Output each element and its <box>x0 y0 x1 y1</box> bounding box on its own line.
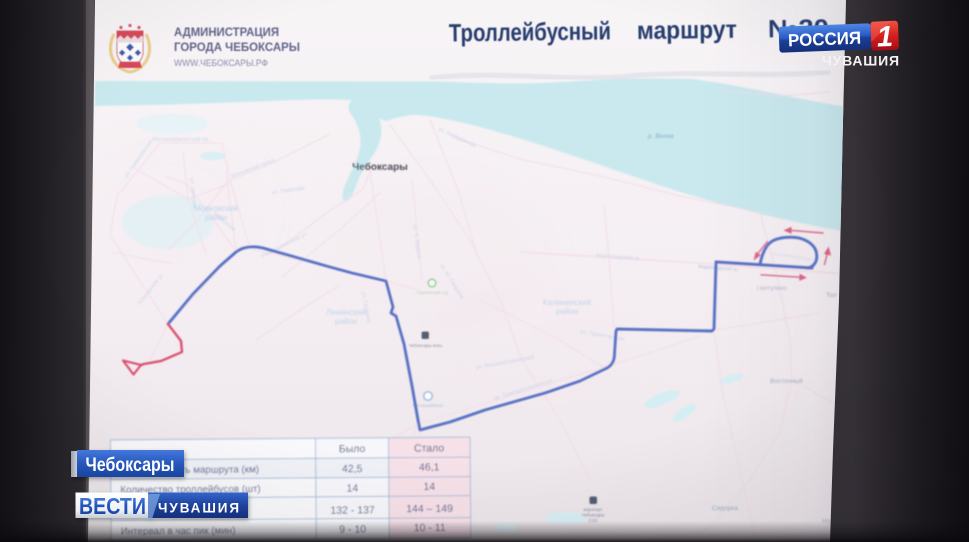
svg-text:Чебоксары: Чебоксары <box>86 455 175 476</box>
svg-text:1: 1 <box>876 21 893 54</box>
svg-text:ЧУВАШИЯ: ЧУВАШИЯ <box>158 500 241 516</box>
svg-text:РОССИЯ: РОССИЯ <box>788 28 862 51</box>
svg-text:ЧУВАШИЯ: ЧУВАШИЯ <box>822 53 900 69</box>
svg-text:ВЕСТИ: ВЕСТИ <box>79 493 146 519</box>
